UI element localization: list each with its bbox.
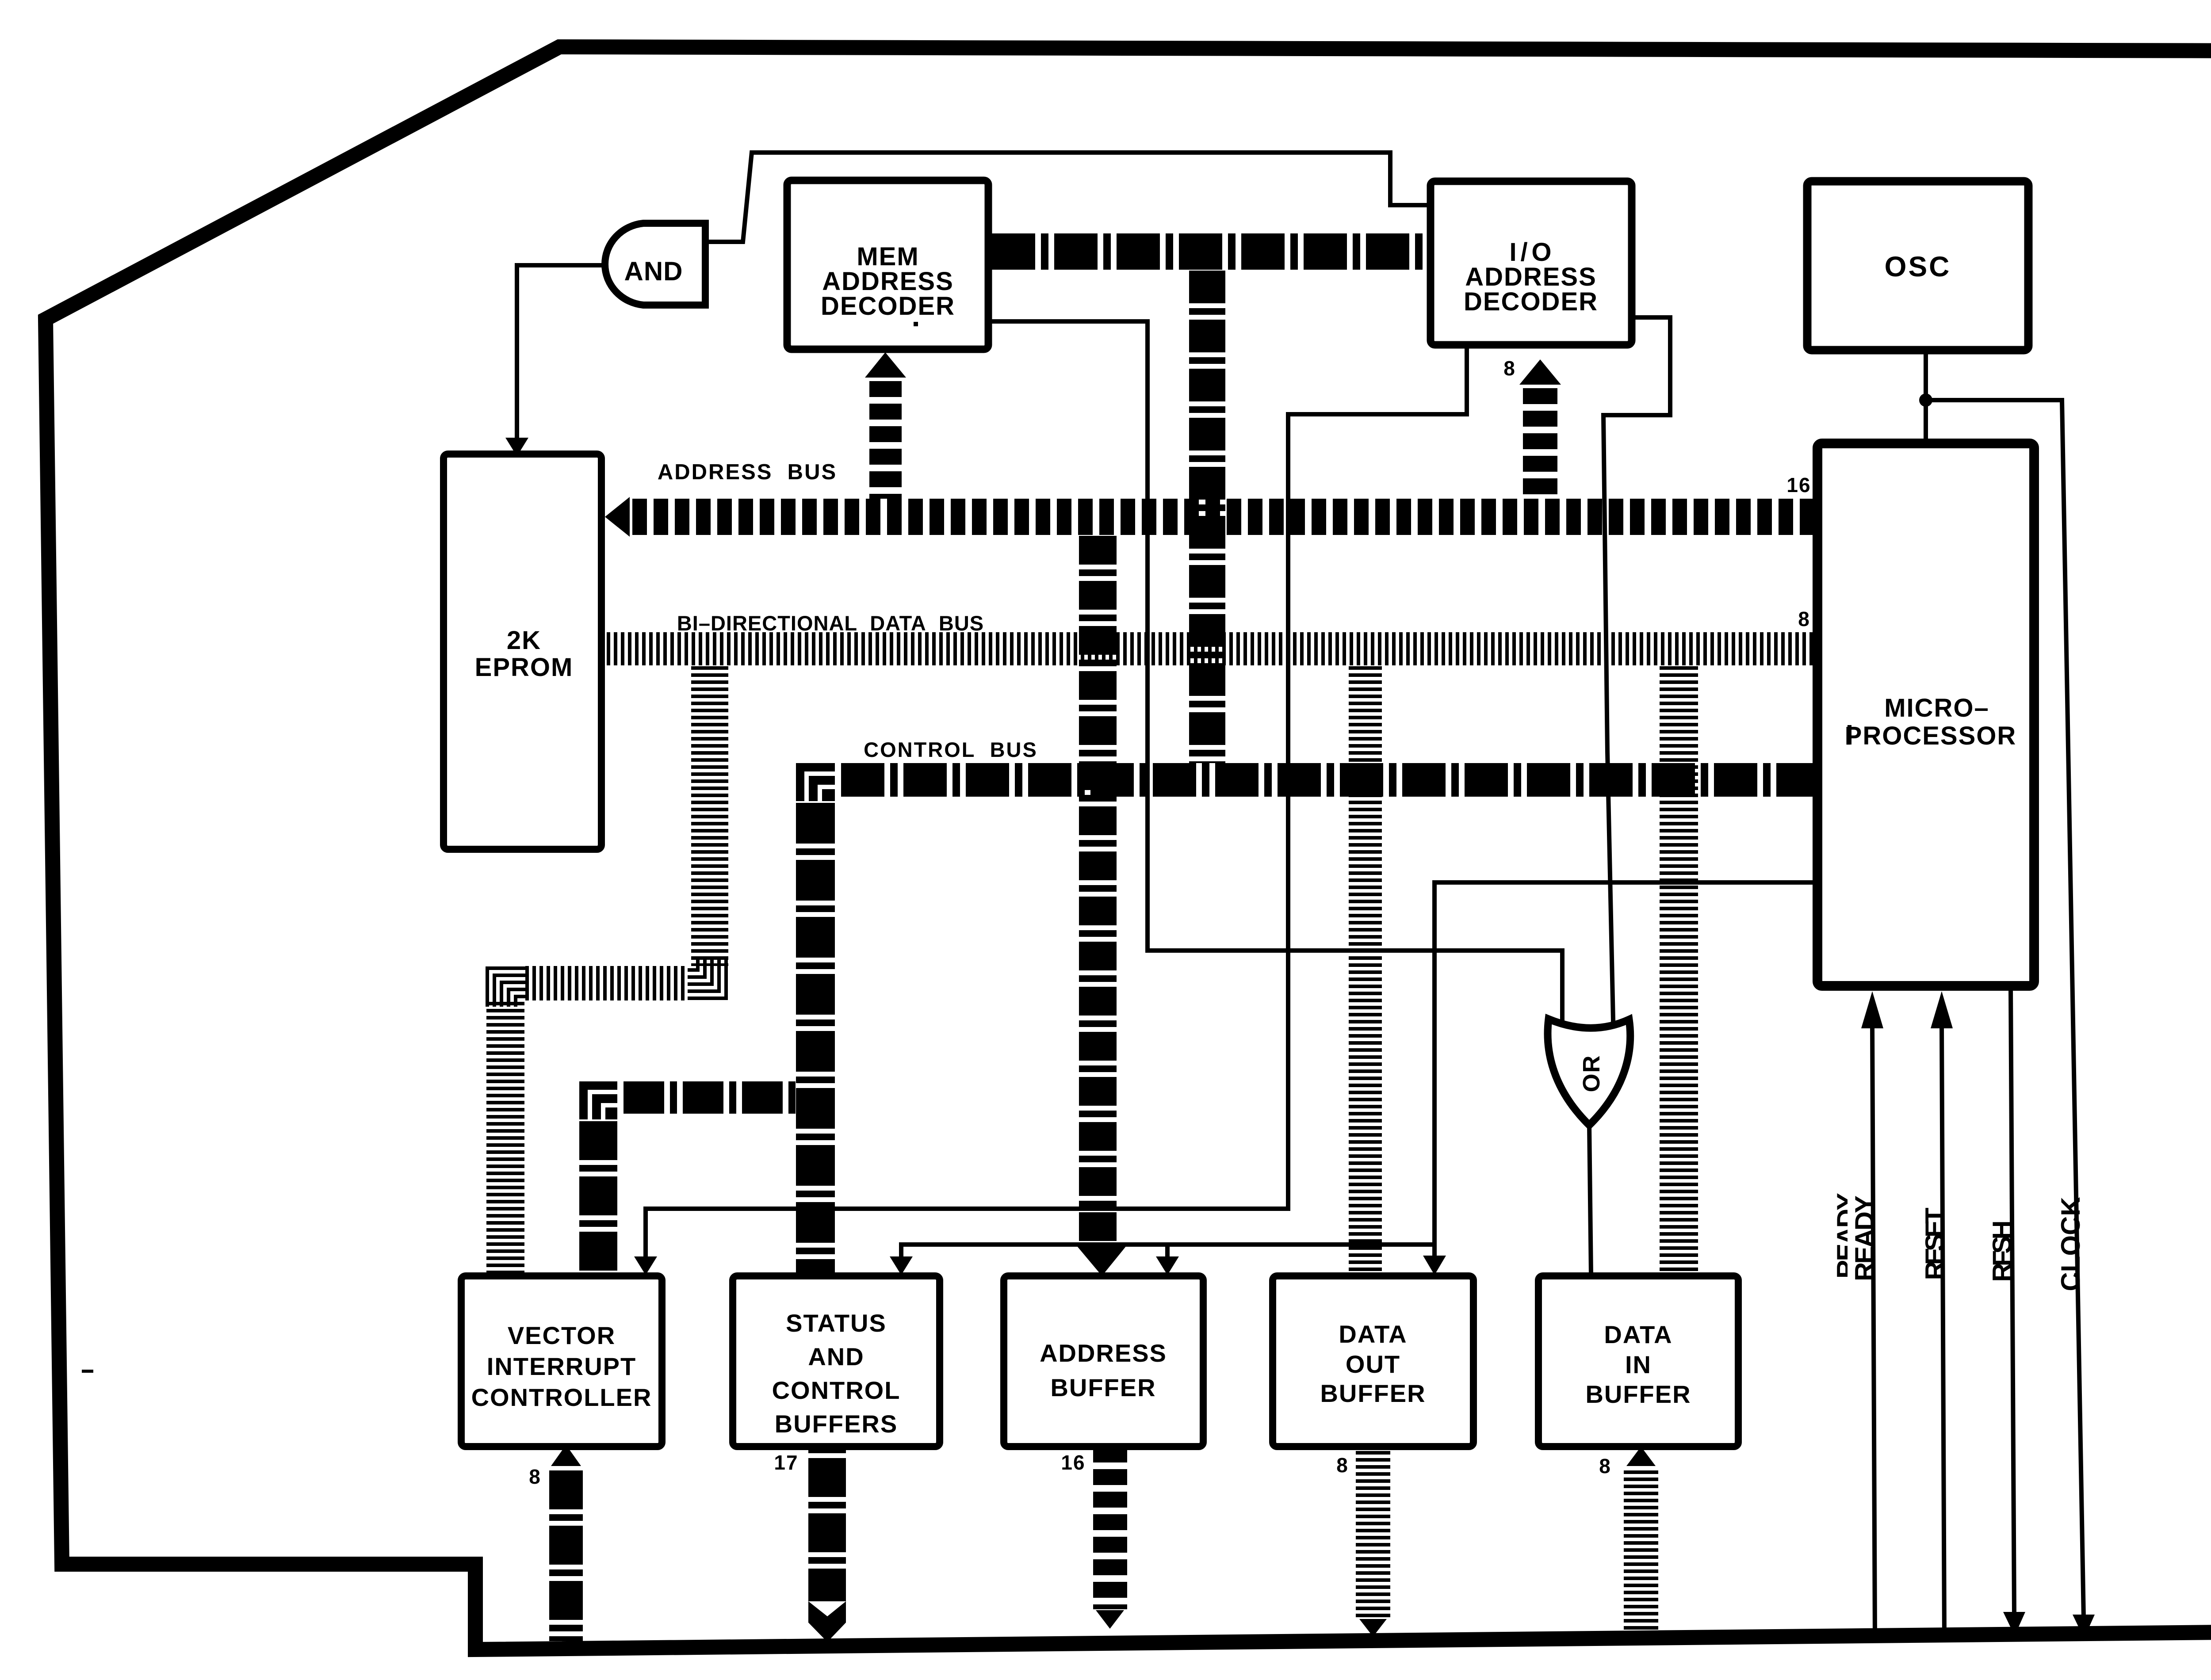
svg-text:8: 8 — [529, 1465, 541, 1488]
svg-text:ADDRESS: ADDRESS — [1040, 1339, 1167, 1367]
svg-text:OSC: OSC — [1885, 251, 1951, 283]
svg-text:DECODER: DECODER — [1464, 287, 1598, 316]
svg-text:DATA: DATA — [1339, 1320, 1407, 1348]
svg-text:RFSH: RFSH — [1987, 1222, 2017, 1282]
svg-text:16: 16 — [1061, 1451, 1085, 1474]
svg-text:AND: AND — [808, 1343, 864, 1371]
svg-text:VECTOR: VECTOR — [508, 1321, 616, 1349]
svg-text:BUFFER: BUFFER — [1585, 1380, 1691, 1408]
svg-text:CONTROL: CONTROL — [772, 1376, 901, 1404]
svg-text:CLOCK: CLOCK — [2056, 1197, 2085, 1291]
svg-text:READY: READY — [1850, 1195, 1879, 1281]
svg-text:2K: 2K — [507, 626, 541, 655]
svg-text:MICRO–: MICRO– — [1884, 694, 1989, 722]
svg-text:CONTROLLER: CONTROLLER — [471, 1383, 652, 1411]
svg-text:AND: AND — [624, 256, 683, 286]
svg-text:BUFFER: BUFFER — [1320, 1379, 1426, 1407]
svg-text:8: 8 — [1336, 1454, 1349, 1477]
svg-text:8: 8 — [1599, 1455, 1611, 1478]
svg-text:17: 17 — [774, 1451, 798, 1474]
svg-text:DECODER: DECODER — [821, 292, 955, 321]
svg-text:IN: IN — [1625, 1351, 1652, 1378]
svg-text:ADDRESS BUS: ADDRESS BUS — [658, 460, 837, 484]
svg-text:PROCESSOR: PROCESSOR — [1845, 722, 2017, 750]
svg-text:OR: OR — [1578, 1055, 1605, 1092]
svg-text:16: 16 — [1786, 473, 1811, 496]
svg-text:BUFFER: BUFFER — [1050, 1374, 1156, 1401]
svg-text:8: 8 — [1798, 607, 1810, 630]
svg-text:OUT: OUT — [1346, 1350, 1400, 1378]
svg-text:EPROM: EPROM — [475, 653, 574, 682]
svg-text:DATA: DATA — [1604, 1321, 1672, 1348]
svg-text:CONTROL BUS: CONTROL BUS — [864, 738, 1038, 761]
svg-text:RESET: RESET — [1920, 1208, 1950, 1280]
svg-text:STATUS: STATUS — [786, 1309, 887, 1337]
svg-text:INTERRUPT: INTERRUPT — [487, 1352, 636, 1380]
svg-text:BUFFERS: BUFFERS — [775, 1410, 898, 1438]
svg-text:8: 8 — [1503, 357, 1516, 380]
svg-text:BI–DIRECTIONAL DATA BUS: BI–DIRECTIONAL DATA BUS — [677, 611, 984, 635]
